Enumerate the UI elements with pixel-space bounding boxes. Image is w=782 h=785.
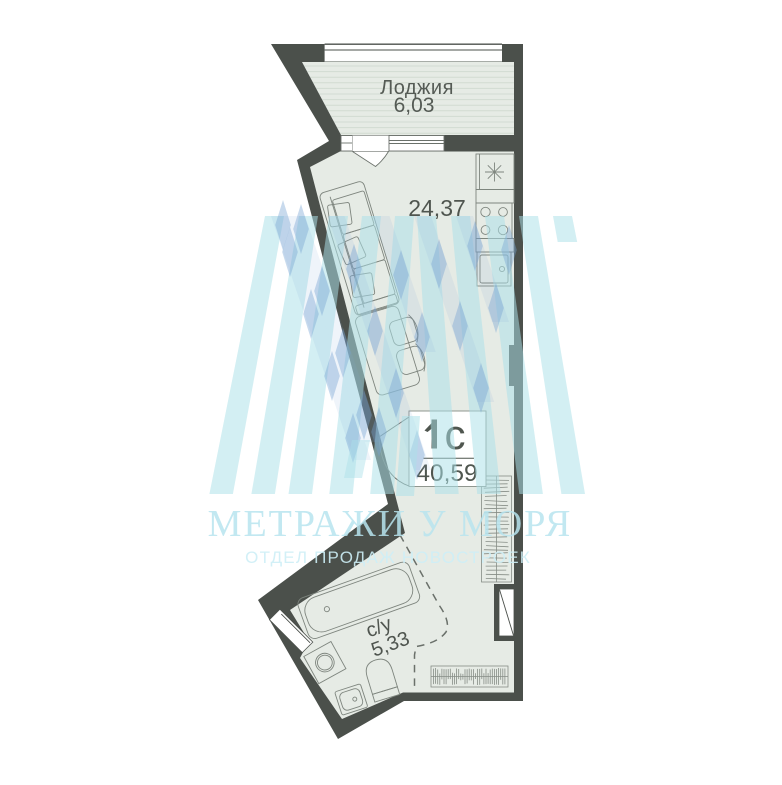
svg-text:ОТДЕЛ ПРОДАЖ НОВОСТРОЕК: ОТДЕЛ ПРОДАЖ НОВОСТРОЕК xyxy=(245,548,531,567)
svg-text:МЕТРАЖИ У МОРЯ: МЕТРАЖИ У МОРЯ xyxy=(208,503,573,545)
svg-text:6,03: 6,03 xyxy=(394,94,435,117)
